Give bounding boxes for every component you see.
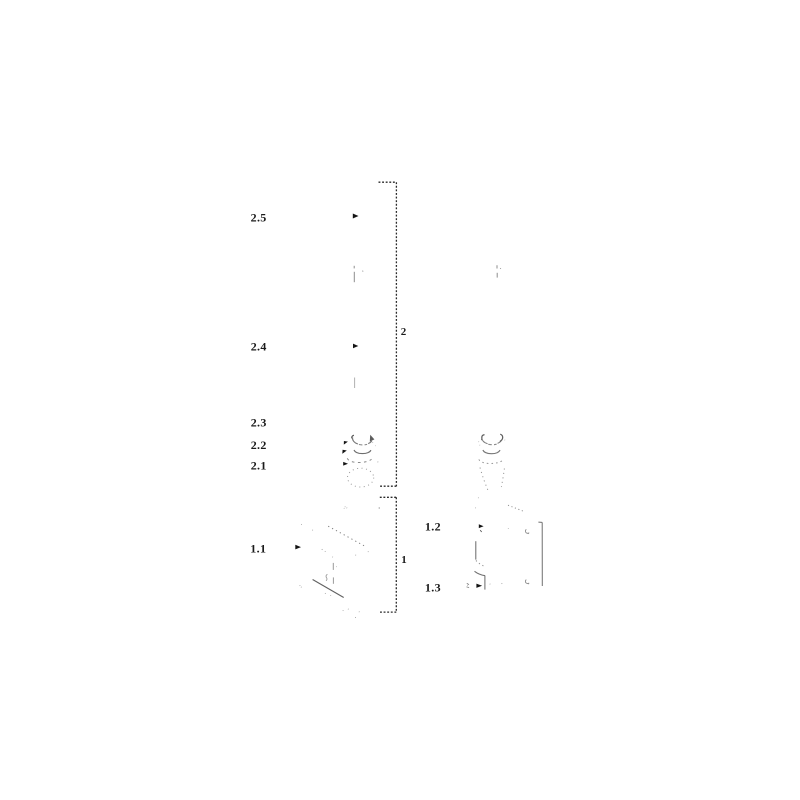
- svg-text:2: 2: [401, 326, 407, 338]
- svg-text:2.5: 2.5: [251, 210, 267, 224]
- svg-text:1.2: 1.2: [425, 520, 441, 534]
- svg-text:1.3: 1.3: [425, 580, 441, 594]
- svg-text:2.4: 2.4: [251, 339, 267, 353]
- svg-text:1: 1: [401, 554, 407, 566]
- svg-text:1.1: 1.1: [250, 542, 266, 556]
- svg-text:2.2: 2.2: [251, 438, 267, 452]
- svg-text:2.3: 2.3: [251, 415, 267, 429]
- svg-text:2.1: 2.1: [251, 459, 267, 473]
